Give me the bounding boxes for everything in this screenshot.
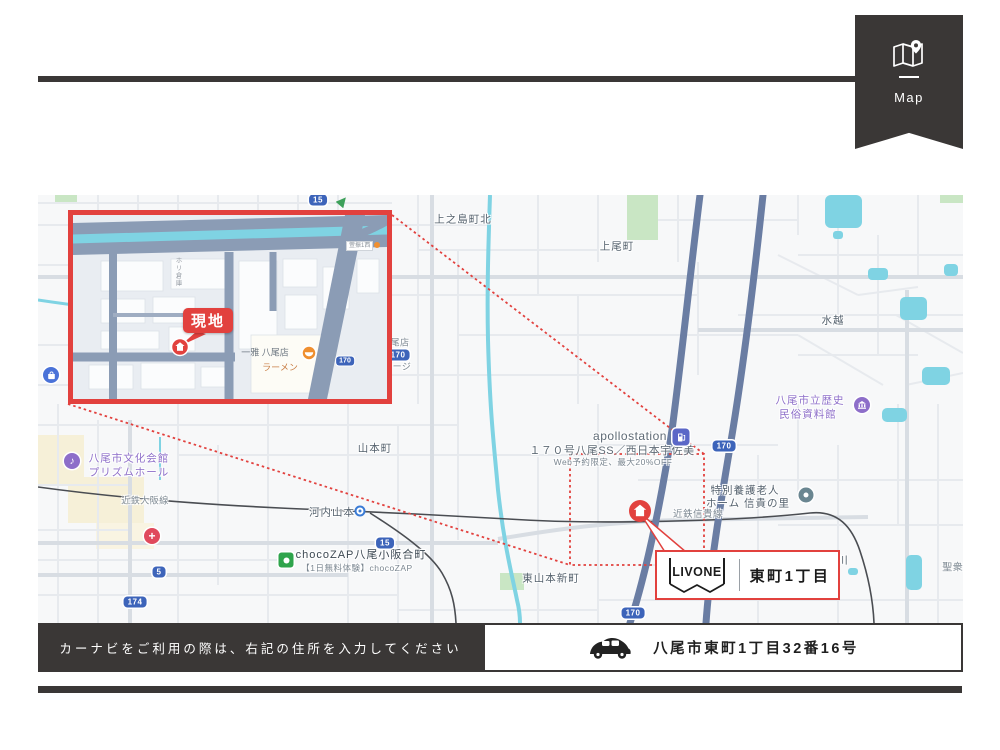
bottom-strip bbox=[38, 686, 962, 693]
gas-station-icon bbox=[673, 429, 690, 446]
map-canvas: 上之島町北 上尾町 水越 山本町 河内山本 八尾市文化会館 プリズムホール 近鉄… bbox=[38, 195, 963, 623]
inset-route-shield-170: 170 bbox=[336, 357, 354, 366]
map-label-prism-hall: プリズムホール bbox=[89, 465, 170, 480]
map-label-museum-1: 八尾市立歴史 bbox=[776, 393, 845, 408]
ribbon-underline bbox=[899, 76, 919, 78]
inset-site-marker bbox=[172, 339, 189, 356]
chocozap-icon bbox=[279, 553, 294, 568]
route-shield-170-right: 170 bbox=[713, 441, 736, 452]
address-bar: 八尾市東町1丁目32番16号 bbox=[483, 623, 963, 672]
elderly-home-icon bbox=[799, 488, 814, 503]
map-label-gas-promo: Web予約限定、最大20%OFF bbox=[554, 456, 673, 468]
map-label-kamio: 上尾町 bbox=[600, 239, 635, 254]
route-shield-170-lower: 170 bbox=[622, 608, 645, 619]
green-arrow-icon bbox=[336, 196, 348, 208]
map-label-mizukoshi: 水越 bbox=[822, 313, 845, 328]
car-icon bbox=[587, 636, 633, 660]
station-icon bbox=[355, 506, 366, 517]
route-shield-5: 5 bbox=[153, 567, 166, 578]
museum-icon bbox=[854, 397, 870, 413]
map-label-shoju: 聖衆山 bbox=[942, 559, 963, 574]
callout-divider bbox=[739, 559, 740, 591]
route-shield-15-top: 15 bbox=[309, 195, 327, 206]
map-label-elderly-2: ホーム 信貴の里 bbox=[706, 496, 790, 511]
house-marker-icon bbox=[629, 500, 651, 522]
map-label-chocozap: chocoZAP八尾小阪合町 bbox=[296, 546, 427, 562]
shopping-icon bbox=[43, 367, 59, 383]
site-badge: 現地 bbox=[183, 308, 233, 333]
map-label-bunka-kaikan: 八尾市文化会館 bbox=[89, 451, 170, 466]
badge-label: Map bbox=[894, 90, 924, 105]
map-label-kaminoshima: 上之島町北 bbox=[434, 212, 492, 227]
inset-shop-name: 一雅 八尾店 bbox=[241, 346, 289, 359]
ramen-icon bbox=[302, 346, 316, 360]
inset-poi-dot bbox=[374, 242, 380, 248]
route-shield-15-mid: 15 bbox=[376, 538, 394, 549]
inset-shop-sub: ラーメン bbox=[262, 361, 298, 374]
inset-road-sign: 萱振1西 bbox=[346, 241, 373, 251]
map-label-kawachiyamamoto: 河内山本 bbox=[309, 505, 355, 520]
top-divider bbox=[38, 76, 855, 82]
map-label-museum-2: 民俗資料館 bbox=[779, 407, 837, 422]
page: Map bbox=[0, 0, 1000, 750]
livone-logo-text: LIVONE bbox=[672, 565, 722, 579]
map-label-partial-shop: 尾店 bbox=[390, 336, 409, 349]
map-label-yamamoto: 山本町 bbox=[358, 441, 393, 456]
map-ribbon-badge: Map bbox=[855, 15, 963, 149]
music-venue-icon: ♪ bbox=[64, 453, 80, 469]
folded-map-icon bbox=[889, 39, 929, 71]
car-navi-message: カーナビをご利用の際は、右記の住所を入力してください bbox=[59, 638, 461, 657]
callout-area-label: 東町1丁目 bbox=[750, 565, 831, 586]
route-shield-174: 174 bbox=[124, 597, 147, 608]
address-text: 八尾市東町1丁目32番16号 bbox=[653, 637, 859, 658]
map-label-higashiyamamoto: 東山本新町 bbox=[522, 571, 580, 586]
map-label-chocozap-sub: 【1日無料体験】chocoZAP bbox=[301, 562, 412, 574]
hospital-icon: + bbox=[144, 528, 160, 544]
map-label-partial-garage: ージ bbox=[393, 360, 412, 373]
car-navi-note: カーナビをご利用の際は、右記の住所を入力してください bbox=[38, 623, 483, 672]
inset-base-graphic bbox=[73, 215, 387, 399]
livone-logo: LIVONE bbox=[665, 554, 729, 596]
map-label-osaka-line: 近鉄大阪線 bbox=[121, 494, 169, 507]
inset-vertical-label: ホリ倉庫 bbox=[172, 257, 182, 287]
property-callout: LIVONE 東町1丁目 bbox=[655, 550, 840, 600]
inset-map: 現地 一雅 八尾店 ラーメン 萱振1西 ホリ倉庫 170 bbox=[68, 210, 392, 404]
map-label-gas-name: apollostation bbox=[593, 429, 667, 443]
